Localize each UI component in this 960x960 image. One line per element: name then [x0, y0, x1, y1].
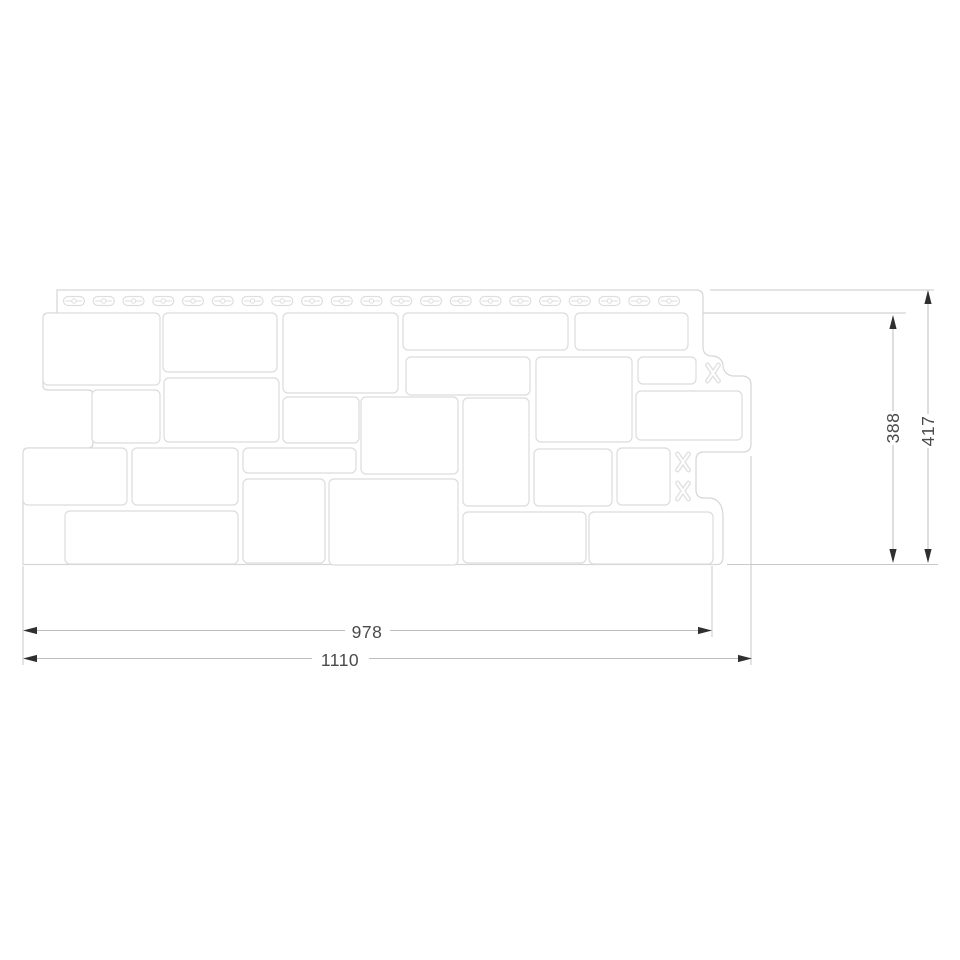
- arrowhead-icon: [924, 549, 931, 563]
- nail-slot-icon: [667, 299, 671, 303]
- arrowhead-icon: [738, 655, 752, 662]
- stone: [283, 313, 398, 393]
- arrowhead-icon: [23, 627, 37, 634]
- stone: [575, 313, 688, 350]
- dimension-label-1110: 1110: [321, 650, 359, 670]
- stone: [43, 313, 160, 385]
- nail-slot-icon: [131, 299, 135, 303]
- stone: [92, 390, 160, 443]
- nail-slot-icon: [72, 299, 76, 303]
- stone: [23, 448, 127, 505]
- nail-slot-icon: [637, 299, 641, 303]
- nail-slot-icon: [310, 299, 314, 303]
- arrowhead-icon: [698, 627, 712, 634]
- nail-slot-icon: [191, 299, 195, 303]
- nail-slot-icon: [221, 299, 225, 303]
- stone: [243, 448, 356, 473]
- dimension-label-417: 417: [918, 416, 938, 447]
- stone: [589, 512, 713, 564]
- dimension-label-388: 388: [883, 413, 903, 444]
- nail-slot-icon: [429, 299, 433, 303]
- stone: [329, 479, 458, 565]
- nail-slot-icon: [488, 299, 492, 303]
- stone: [463, 512, 586, 563]
- stone: [463, 398, 529, 506]
- stone: [534, 449, 612, 506]
- stone: [403, 313, 568, 350]
- nail-slot-icon: [161, 299, 165, 303]
- stone: [638, 357, 696, 384]
- panel-technical-drawing: 978 1110 388 417: [0, 0, 960, 960]
- arrowhead-icon: [924, 290, 931, 304]
- nail-slot-icon: [578, 299, 582, 303]
- nail-slot-icon: [399, 299, 403, 303]
- arrowhead-icon: [889, 549, 896, 563]
- drawing-geometry: [23, 290, 938, 665]
- stone: [283, 397, 359, 443]
- nail-slot-icon: [340, 299, 344, 303]
- stone: [636, 391, 742, 440]
- stone: [617, 448, 670, 505]
- stone: [65, 511, 238, 564]
- arrowhead-icon: [23, 655, 37, 662]
- nail-slot-icon: [280, 299, 284, 303]
- nail-slot-icon: [548, 299, 552, 303]
- stone: [163, 313, 277, 372]
- stone: [536, 357, 632, 442]
- stone: [132, 448, 238, 505]
- nail-slot-icon: [250, 299, 254, 303]
- stone: [406, 357, 530, 395]
- stone: [164, 378, 279, 442]
- stone: [243, 479, 325, 563]
- stone: [361, 397, 458, 474]
- nail-slot-icon: [369, 299, 373, 303]
- nail-slot-icon: [459, 299, 463, 303]
- arrowhead-icon: [889, 315, 896, 329]
- drawing-canvas: 978 1110 388 417: [0, 0, 960, 960]
- nail-slot-icon: [607, 299, 611, 303]
- dimension-label-978: 978: [352, 622, 383, 642]
- nail-slot-icon: [102, 299, 106, 303]
- nail-slot-icon: [518, 299, 522, 303]
